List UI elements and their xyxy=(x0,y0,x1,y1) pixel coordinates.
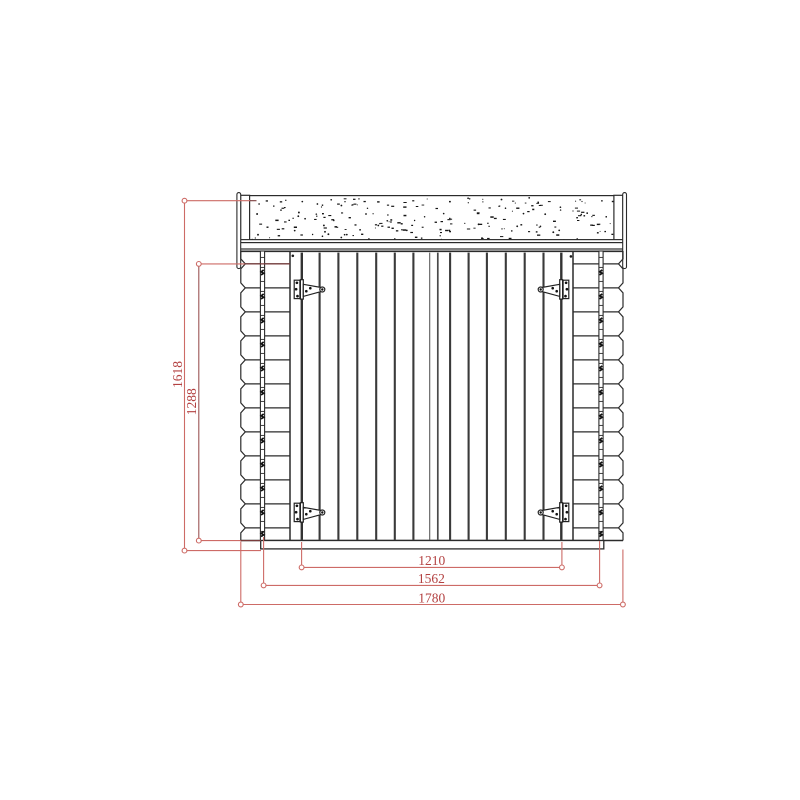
svg-text:1210: 1210 xyxy=(418,553,445,568)
svg-text:1562: 1562 xyxy=(418,571,445,586)
svg-text:1780: 1780 xyxy=(418,590,445,605)
svg-text:1288: 1288 xyxy=(184,388,199,415)
svg-text:1618: 1618 xyxy=(170,361,185,388)
